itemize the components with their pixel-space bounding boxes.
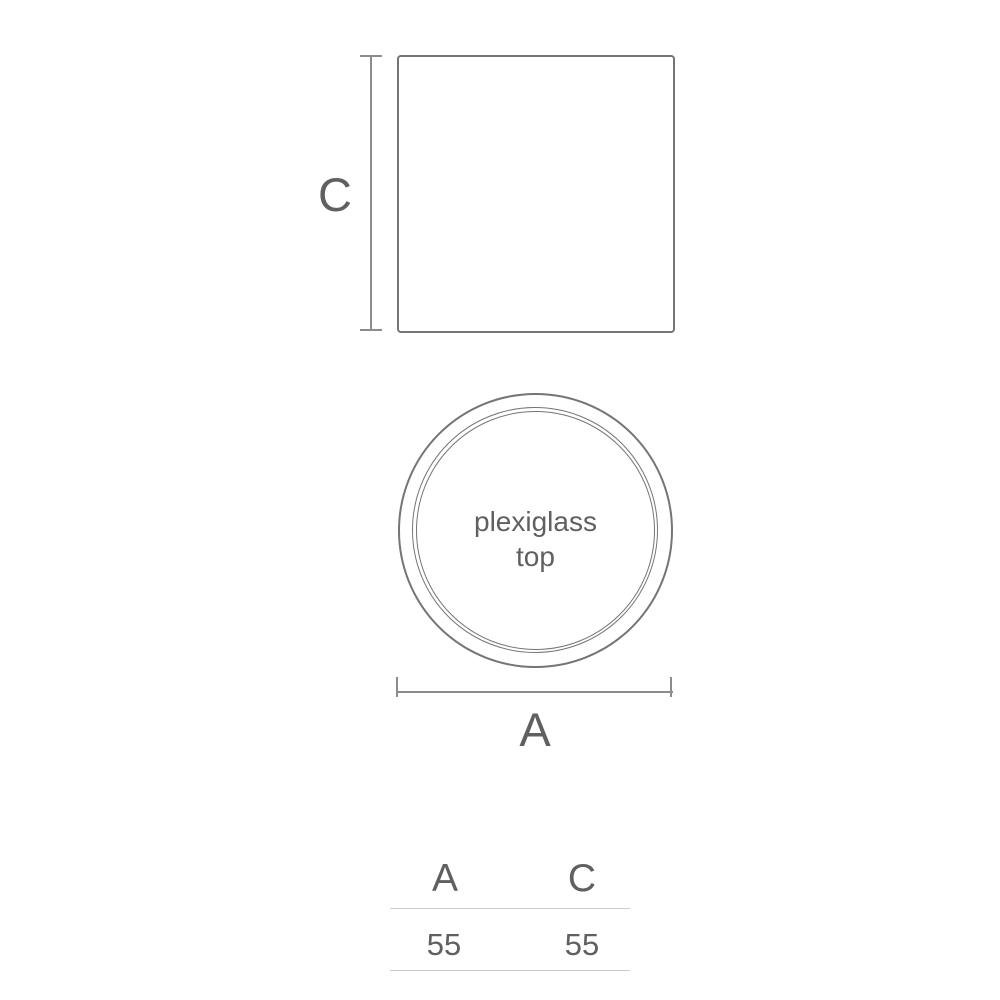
dimension-cap-top <box>360 55 382 57</box>
top-view-label-line1: plexiglass <box>435 504 636 539</box>
top-view-label-line2: top <box>435 539 636 574</box>
table-value-c: 55 <box>532 926 632 963</box>
dimension-line-a <box>397 691 673 693</box>
dimension-label-c: C <box>308 167 362 223</box>
diagram-canvas: C plexiglass top A A C 55 55 <box>0 0 1000 1000</box>
dimension-line-c <box>370 56 372 330</box>
table-rule-bottom <box>390 970 630 971</box>
dimension-tick-right <box>670 677 672 697</box>
top-view-label: plexiglass top <box>435 504 636 574</box>
dimension-cap-bottom <box>360 329 382 331</box>
dimension-label-a: A <box>508 702 562 758</box>
table-header-a: A <box>395 856 495 902</box>
table-header-c: C <box>532 856 632 902</box>
dimension-tick-left <box>396 677 398 697</box>
table-value-a: 55 <box>394 926 494 963</box>
side-view-square <box>397 55 675 333</box>
table-rule-top <box>390 908 630 909</box>
